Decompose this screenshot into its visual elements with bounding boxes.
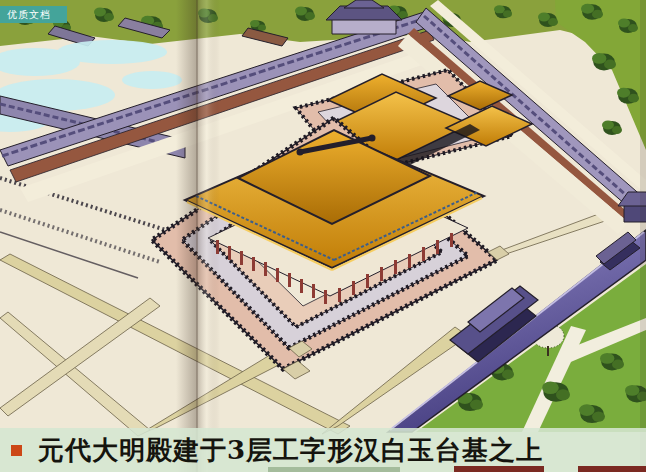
photo-edge-strip (268, 467, 400, 472)
caption-band: 元代大明殿建于3层工字形汉白玉台基之上 (0, 428, 646, 472)
watermark-ribbon: 优质文档 (0, 6, 67, 23)
photo-edge-strip (578, 466, 646, 472)
caption-bullet (11, 445, 22, 456)
photo-edge-strip (454, 466, 544, 472)
slide: 优质文档 元代大明殿建于3层工字形汉白玉台基之上 (0, 0, 646, 472)
caption-text: 元代大明殿建于3层工字形汉白玉台基之上 (38, 433, 543, 468)
watermark-label: 优质文档 (7, 9, 51, 20)
palace-illustration (0, 0, 646, 472)
